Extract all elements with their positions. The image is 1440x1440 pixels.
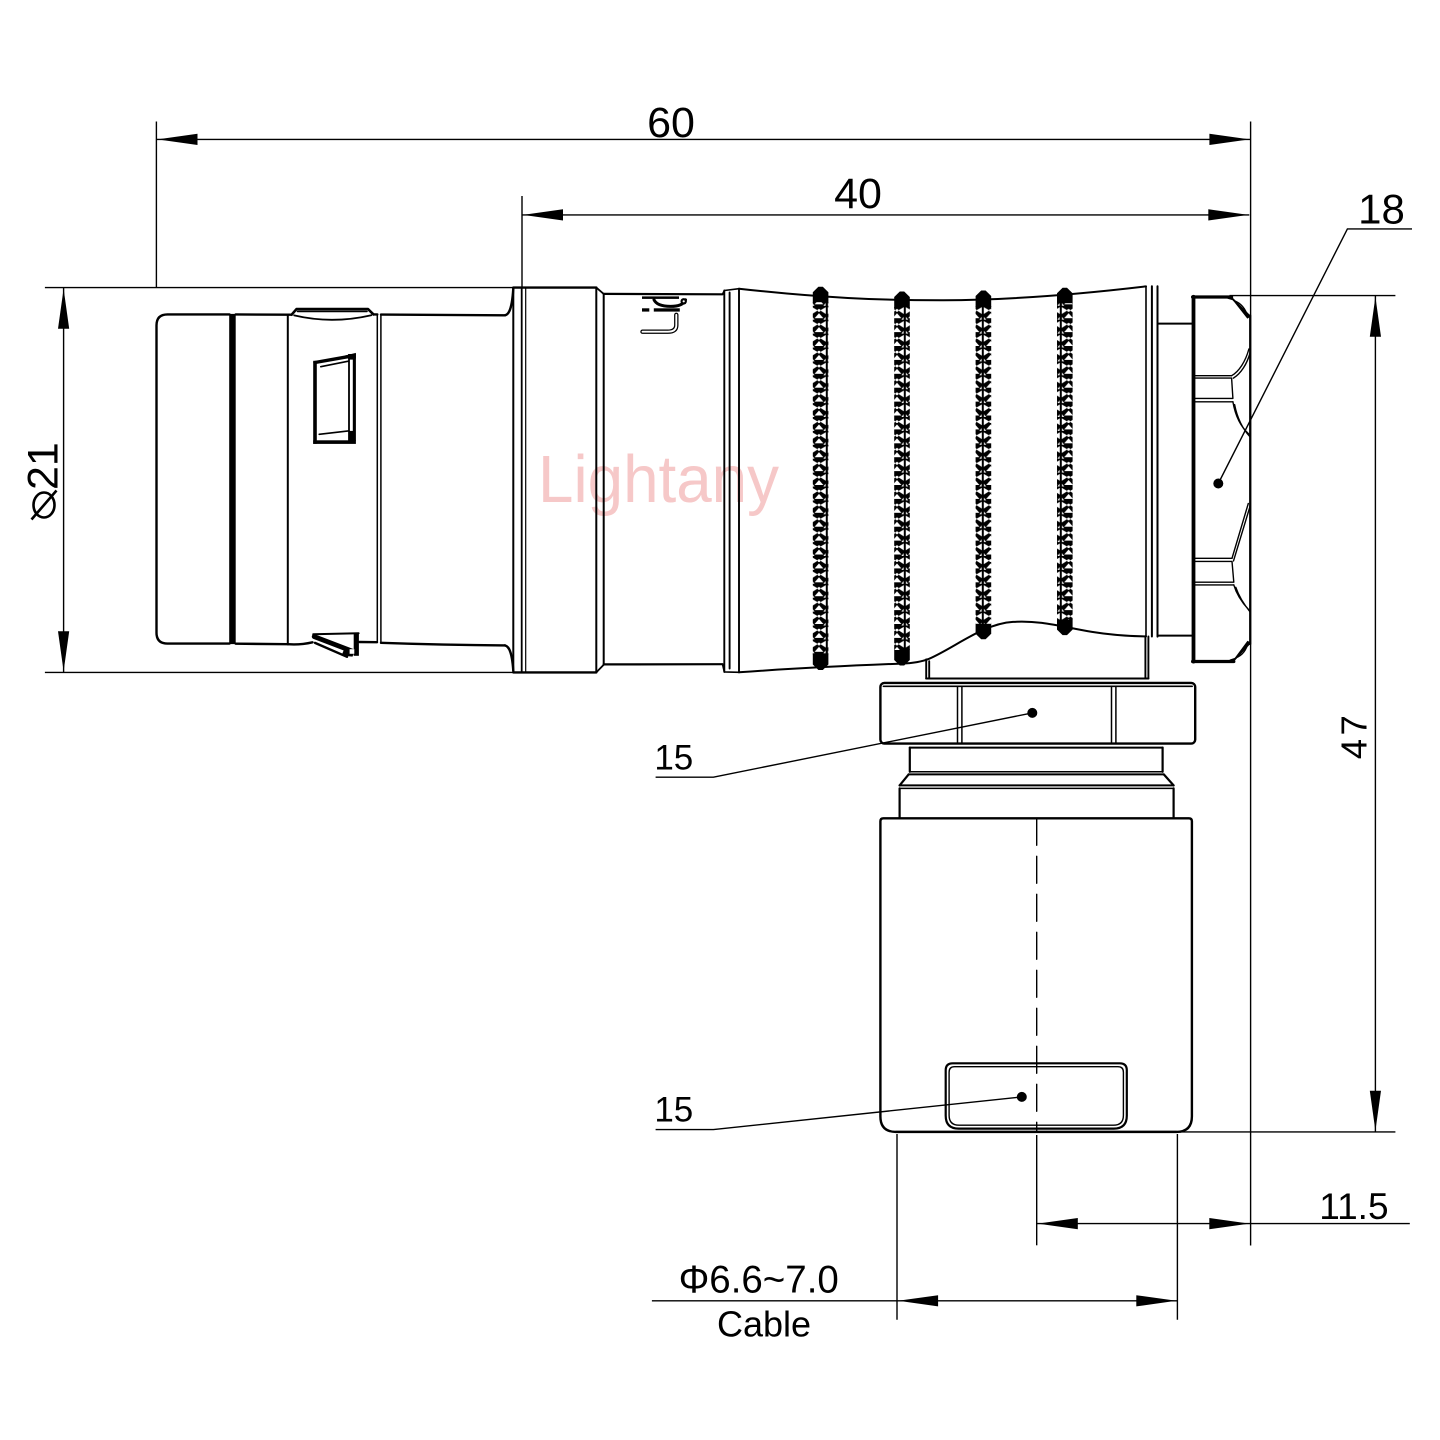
- svg-text:47: 47: [1334, 712, 1375, 760]
- svg-text:Φ6.6~7.0: Φ6.6~7.0: [679, 1259, 839, 1302]
- svg-text:60: 60: [647, 99, 695, 147]
- svg-text:15: 15: [654, 738, 693, 777]
- svg-text:40: 40: [834, 170, 882, 218]
- svg-text:21: 21: [20, 442, 68, 490]
- svg-text:15: 15: [654, 1090, 693, 1129]
- svg-text:11.5: 11.5: [1319, 1186, 1388, 1227]
- svg-text:Cable: Cable: [717, 1303, 811, 1344]
- svg-text:18: 18: [1358, 186, 1405, 233]
- svg-text:Lightany: Lightany: [538, 442, 779, 517]
